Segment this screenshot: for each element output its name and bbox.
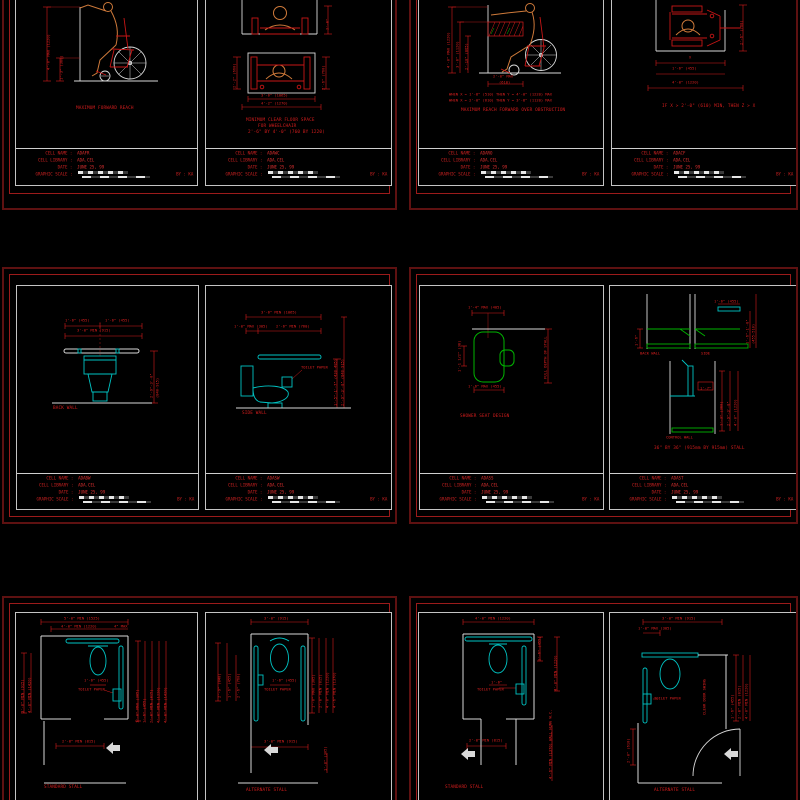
sheet-caption: MAXIMUM FORWARD REACH	[76, 106, 134, 110]
graphic-scale-label: GRAPHIC SCALE :	[208, 498, 262, 502]
title-block: CELL NAME :ADAST CELL LIBRARY :ADA.CEL D…	[610, 473, 797, 510]
drawn-by: BY : KA	[370, 173, 387, 177]
graphic-scale-bar	[268, 496, 346, 506]
dimension-layer: 3'-0" MIN (915)1'-0" MAX (305)TOILET PAP…	[610, 613, 797, 800]
title-block: CELL NAME :ADASS CELL LIBRARY :ADA.CEL D…	[420, 473, 603, 510]
panel-shower-details[interactable]: 1'-4" MAX (405)1'-1 1/2" (38)1'-6" MAX (…	[409, 267, 798, 524]
cell-name-label: CELL NAME :	[19, 477, 73, 481]
dim-text: 3'-6" MIN (1065)	[261, 311, 297, 315]
date-label: DATE :	[421, 166, 475, 170]
dim-text: 2'-8" MIN (815)	[738, 685, 742, 719]
dim-text: 4'-0" (1220)	[672, 81, 699, 85]
dim-text: 1'-3" (380)	[60, 55, 64, 80]
dim-text: 2'-9"-3'-0"	[727, 401, 731, 426]
graphic-scale-label: GRAPHIC SCALE :	[614, 173, 668, 177]
cell-library-label: CELL LIBRARY :	[614, 159, 668, 163]
cell-library-label: CELL LIBRARY :	[208, 159, 262, 163]
sheet-caption-line1: MINIMUM CLEAR FLOOR SPACE	[246, 118, 315, 122]
dim-text: 4'-2" (1270)	[261, 102, 288, 106]
dim-text: TOILET PAPER	[264, 688, 291, 692]
dim-text: FULL DEPTH OF STALL	[544, 336, 548, 379]
cell-name-value: ADAST	[671, 476, 683, 481]
cell-library-value: ADA.CEL	[267, 158, 284, 163]
drawn-by: BY : KA	[370, 498, 387, 502]
dim-text: TOILET PAPER	[477, 688, 504, 692]
title-block: CELL NAME :ADABW CELL LIBRARY :ADA.CEL D…	[17, 473, 198, 510]
cell-name-value: ADAWC	[267, 151, 279, 156]
panel-toilet-stalls-2[interactable]: 4'-0" MIN (1220)1'-6" (455)1'-6"TOILET P…	[409, 596, 798, 800]
dim-text: 4'-6" MIN (1370) WALL HUNG W.C.	[549, 710, 553, 779]
dim-text: 2'-0" MAX	[493, 75, 513, 79]
date-value: JUNE 25, 99	[481, 490, 508, 495]
dim-text: 2'-8"	[326, 19, 330, 30]
dim-text: 1'-6" (455)	[272, 679, 297, 683]
dimension-layer: 3'-0" (915)2'-9" (840)1'-6" (455)2'-6" (…	[206, 613, 391, 800]
dim-text: 1'-0" MAX (305)	[638, 627, 672, 631]
title-block-separator	[16, 148, 197, 149]
cell-library-label: CELL LIBRARY :	[19, 484, 73, 488]
date-label: DATE :	[208, 491, 262, 495]
dim-text: 2'-9" (840)	[218, 673, 222, 698]
dim-text: 3'-0" MIN (915)	[264, 740, 298, 744]
graphic-scale-bar	[672, 496, 750, 506]
cell-name-label: CELL NAME :	[208, 477, 262, 481]
sheet-reach-over-obstruction: 4'-0" MAX (1220)3'-8" (1120)2'-10" (865)…	[418, 0, 604, 186]
dim-text: 2'-2" (660)	[233, 63, 237, 88]
sheet-shower-seat: 1'-4" MAX (405)1'-1 1/2" (38)1'-6" MAX (…	[419, 285, 604, 510]
sheet-caption: IF X > 2'-0" (610) MIN, THEN Z > X	[662, 104, 755, 108]
title-block: CELL NAME :ADARO CELL LIBRARY :ADA.CEL D…	[419, 148, 603, 186]
date-label: DATE :	[614, 166, 668, 170]
dim-text: TOILET PAPER	[78, 688, 105, 692]
cad-preview-collage: 4'-0" MAX (1220)1'-3" (380) MAXIMUM FORW…	[0, 0, 800, 800]
dim-text: 4'-0" MIN (1220)	[745, 683, 749, 719]
dim-text: 3'-0" (915)	[264, 617, 289, 621]
dim-text: 1'-6"-1'-8"	[746, 319, 750, 344]
date-value: JUNE 25, 99	[77, 165, 104, 170]
title-block-separator	[610, 473, 797, 474]
dim-text: 1'-1 1/2" (38)	[458, 341, 462, 372]
dim-text: 1'-6" (455)	[105, 319, 130, 323]
sheet-caption: ALTERNATE STALL	[246, 788, 287, 792]
dim-text: 1'-6" (455)	[143, 698, 147, 723]
graphic-scale-bar	[78, 171, 156, 181]
drawn-by: BY : KA	[776, 173, 793, 177]
dim-text: 1'-4" MAX (405)	[468, 306, 502, 310]
graphic-scale-bar	[481, 171, 559, 181]
dim-text: 1'-6" (455)	[228, 673, 232, 698]
dim-text: 2'-6" (760)	[740, 20, 744, 45]
dim-text: TOILET PAPER	[301, 366, 328, 370]
graphic-scale-label: GRAPHIC SCALE :	[421, 173, 475, 177]
sheet-caption: MAXIMUM REACH FORWARD OVER OBSTRUCTION	[461, 108, 565, 112]
date-label: DATE :	[19, 491, 73, 495]
dim-text: (610)	[499, 81, 510, 85]
panel-toilet-stalls-1[interactable]: 5'-0" MIN (1525)4'-0" MIN (1220)4" MAX1'…	[2, 596, 397, 800]
dim-text: 2'-0" (610)	[627, 738, 631, 763]
cell-name-label: CELL NAME :	[208, 152, 262, 156]
dim-text: 1'-6" (455)	[538, 636, 542, 661]
dim-text: 1'-0" (305)	[324, 746, 328, 771]
date-label: DATE :	[208, 166, 262, 170]
graphic-scale-bar	[79, 496, 157, 506]
dim-text: 4'-0" MIN (1220)	[475, 617, 511, 621]
graphic-scale-label: GRAPHIC SCALE :	[208, 173, 262, 177]
sheet-wheelchair-dimensions: 2'-8"2'-2" (660)2'-6" (760)3'-6" (1065)4…	[205, 0, 392, 186]
dim-text: SIDE	[701, 352, 710, 356]
drawn-by: BY : KA	[176, 173, 193, 177]
cell-library-value: ADA.CEL	[267, 483, 284, 488]
date-value: JUNE 25, 99	[671, 490, 698, 495]
dim-text: 2'-8" MIN (815)	[469, 739, 503, 743]
panel-reach-diagrams[interactable]: 4'-0" MAX (1220)1'-3" (380) MAXIMUM FORW…	[2, 0, 397, 210]
graphic-scale-bar	[674, 171, 752, 181]
cell-library-value: ADA.CEL	[481, 483, 498, 488]
date-value: JUNE 25, 99	[480, 165, 507, 170]
title-block-separator	[17, 473, 198, 474]
dim-text: 4'-8" MIN (1420)	[28, 677, 32, 713]
dim-text: 1'-0" MAX (305)	[312, 674, 316, 708]
title-block-separator	[612, 148, 797, 149]
date-value: JUNE 25, 99	[673, 165, 700, 170]
dim-text: 1'-6" (455)	[672, 67, 697, 71]
dim-text: 2'-8" MIN (815)	[319, 674, 323, 708]
graphic-scale-bar	[268, 171, 346, 181]
graphic-scale-bar	[482, 496, 560, 506]
dim-text: 2'-8" MIN (815)	[62, 740, 96, 744]
sheet-caption: STANDARD STALL	[44, 785, 82, 789]
dim-text: 1'-3" (380)	[720, 401, 724, 426]
title-block-separator	[420, 473, 603, 474]
dim-text: 3'-6" (1065)	[261, 94, 288, 98]
dim-text: 1'-7"	[700, 387, 711, 391]
dim-text: 4" MAX	[114, 625, 127, 629]
dim-text: 4'-0" (1220)	[734, 399, 738, 426]
cell-name-value: ADABW	[78, 476, 90, 481]
dim-text: 5'-0" MIN (1525)	[64, 617, 100, 621]
sheet-caption: SHOWER SEAT DESIGN	[460, 414, 509, 418]
dim-text: (840-915)	[156, 378, 160, 398]
cell-name-value: ADACF	[673, 151, 685, 156]
cell-library-value: ADA.CEL	[77, 158, 94, 163]
dim-text: 2'-8" MIN (815)	[150, 689, 154, 723]
graphic-scale-label: GRAPHIC SCALE :	[19, 498, 73, 502]
cell-library-value: ADA.CEL	[671, 483, 688, 488]
cell-library-label: CELL LIBRARY :	[208, 484, 262, 488]
dim-text: 4'-0" MAX (1220)	[447, 32, 451, 68]
dim-text: 4'-0" MIN (1220)	[61, 625, 97, 629]
date-label: DATE :	[612, 491, 666, 495]
sheet-toilet-side-wall: 3'-6" MIN (1065)1'-0" MAX (305)2'-6" MIN…	[205, 285, 392, 510]
cell-name-label: CELL NAME :	[422, 477, 476, 481]
drawn-by: BY : KA	[582, 498, 599, 502]
dim-text: TOILET PAPER	[654, 697, 681, 701]
cell-library-value: ADA.CEL	[78, 483, 95, 488]
dim-text: 4'-6" MIN (1370)	[333, 672, 337, 708]
dim-text: CONTROL WALL	[666, 436, 693, 440]
sheet-caption: 36" BY 36" (915mm BY 915mm) STALL	[654, 446, 745, 450]
cell-library-label: CELL LIBRARY :	[612, 484, 666, 488]
dim-text: 2'-6" MIN (760)	[276, 325, 310, 329]
cell-name-value: ADASS	[481, 476, 493, 481]
dim-text: 1'-0" MAX (305)	[136, 689, 140, 723]
dim-text: WHEN X = 2'-0" (610) THEN Y = 3'-8" (112…	[449, 99, 552, 103]
drawn-by: BY : KA	[177, 498, 194, 502]
dimension-layer: 5'-0" MIN (1525)4'-0" MIN (1220)4" MAX1'…	[16, 613, 197, 800]
drawn-by: BY : KA	[776, 498, 793, 502]
dim-text: 3'-0" MIN (915)	[662, 617, 696, 621]
cell-library-label: CELL LIBRARY :	[421, 159, 475, 163]
title-block: CELL NAME :ADASW CELL LIBRARY :ADA.CEL D…	[206, 473, 391, 510]
dim-text: 4'-0" MAX (1220)	[47, 34, 51, 70]
dimension-layer: 4'-0" MIN (1220)1'-6" (455)1'-6"TOILET P…	[419, 613, 603, 800]
graphic-scale-label: GRAPHIC SCALE :	[612, 498, 666, 502]
dim-text: 4'-8" MIN (1420)	[164, 687, 168, 723]
dim-text: 3'-8" (1120)	[456, 41, 460, 68]
panel-reach-over-obstruction[interactable]: 4'-0" MAX (1220)3'-8" (1120)2'-10" (865)…	[409, 0, 798, 210]
dim-text: CLEAR DOOR SWING	[703, 679, 707, 715]
cell-name-label: CELL NAME :	[614, 152, 668, 156]
date-value: JUNE 25, 99	[78, 490, 105, 495]
cell-library-value: ADA.CEL	[480, 158, 497, 163]
sheet-toilet-back-wall: 1'-6" (455)1'-6" (455)3'-0" MIN (915)2'-…	[16, 285, 199, 510]
title-block-separator	[206, 148, 391, 149]
sheet-caption: BACK WALL	[53, 406, 78, 410]
dim-text: 1'-6"	[635, 335, 639, 346]
graphic-scale-label: GRAPHIC SCALE :	[18, 173, 72, 177]
sheet-caption: SIDE WALL	[242, 411, 267, 415]
cell-name-value: ADASW	[267, 476, 279, 481]
sheet-caption-line2: FOR WHEELCHAIR	[258, 124, 296, 128]
date-label: DATE :	[18, 166, 72, 170]
dim-text: 1'-6"	[491, 681, 502, 685]
sheet-alternate-stall-1: 3'-0" (915)2'-9" (840)1'-6" (455)2'-6" (…	[205, 612, 392, 800]
dim-text: X	[689, 56, 691, 60]
cell-library-value: ADA.CEL	[673, 158, 690, 163]
dim-text: 4'-0" MIN (1220)	[157, 687, 161, 723]
sheet-standard-stall-1: 5'-0" MIN (1525)4'-0" MIN (1220)4" MAX1'…	[15, 612, 198, 800]
sheet-shower-stall: 1'-6"BACK WALLSIDE1'-6" (455)1'-6"-1'-8"…	[609, 285, 798, 510]
dim-text: 3'-0" MIN (915)	[77, 329, 111, 333]
dim-text: 1'-6" (455)	[65, 319, 90, 323]
dim-text: (455-510)	[752, 324, 756, 344]
sheet-standard-stall-2: 4'-0" MIN (1220)1'-6" (455)1'-6"TOILET P…	[418, 612, 604, 800]
sheet-alcove-clear-space: 2'-6" (760)X1'-6" (455)4'-0" (1220) IF X…	[611, 0, 798, 186]
sheet-caption: STANDARD STALL	[445, 785, 483, 789]
dim-text: 4'-0" MIN (1220)	[326, 672, 330, 708]
cell-name-label: CELL NAME :	[612, 477, 666, 481]
dim-text: 4'-0" MIN (1220)	[554, 655, 558, 691]
dim-text: 1'-0" MAX (305)	[234, 325, 268, 329]
sheet-caption-line3: 2'-6" BY 4'-0" (760 BY 1220)	[248, 130, 325, 134]
drawn-by: BY : KA	[582, 173, 599, 177]
title-block: CELL NAME :ADAFR CELL LIBRARY :ADA.CEL D…	[16, 148, 197, 186]
date-value: JUNE 25, 99	[267, 165, 294, 170]
title-block: CELL NAME :ADACF CELL LIBRARY :ADA.CEL D…	[612, 148, 797, 186]
date-label: DATE :	[422, 491, 476, 495]
cell-library-label: CELL LIBRARY :	[422, 484, 476, 488]
dim-text: 3'-0" MIN (915)	[21, 679, 25, 713]
cell-name-value: ADAFR	[77, 151, 89, 156]
sheet-max-forward-reach: 4'-0" MAX (1220)1'-3" (380) MAXIMUM FORW…	[15, 0, 198, 186]
graphic-scale-label: GRAPHIC SCALE :	[422, 498, 476, 502]
title-block-separator	[419, 148, 603, 149]
dim-text: 2'-9"-3'-0"	[150, 373, 154, 398]
dim-text: 1'-6" (455)	[84, 679, 109, 683]
title-block: CELL NAME :ADAWC CELL LIBRARY :ADA.CEL D…	[206, 148, 391, 186]
dim-text: 1'-6" MAX (455)	[468, 385, 502, 389]
cell-library-label: CELL LIBRARY :	[18, 159, 72, 163]
dim-text: BACK WALL	[640, 352, 660, 356]
date-value: JUNE 25, 99	[267, 490, 294, 495]
cell-name-label: CELL NAME :	[18, 152, 72, 156]
sheet-alternate-stall-2: 3'-0" MIN (915)1'-0" MAX (305)TOILET PAP…	[609, 612, 798, 800]
dim-text: 2'-9"-3'-0" (840-915)	[341, 359, 345, 406]
dim-text: 2'-10" (865)	[465, 43, 469, 70]
panel-toilet-elevations[interactable]: 1'-6" (455)1'-6" (455)3'-0" MIN (915)2'-…	[2, 267, 397, 524]
dim-text: WHEN X = 1'-8" (510) THEN Y = 4'-0" (122…	[449, 93, 552, 97]
dim-text: 1'-5"-1'-7" (430-485)	[334, 359, 338, 406]
dim-text: 1'-6" (455)	[714, 300, 739, 304]
dim-text: 2'-6" (760)	[322, 65, 326, 90]
dim-text: 1'-6" (455)	[731, 694, 735, 719]
dim-text: 2'-6" (760)	[237, 673, 241, 698]
title-block-separator	[206, 473, 391, 474]
sheet-caption: ALTERNATE STALL	[654, 788, 695, 792]
cell-name-label: CELL NAME :	[421, 152, 475, 156]
cell-name-value: ADARO	[480, 151, 492, 156]
